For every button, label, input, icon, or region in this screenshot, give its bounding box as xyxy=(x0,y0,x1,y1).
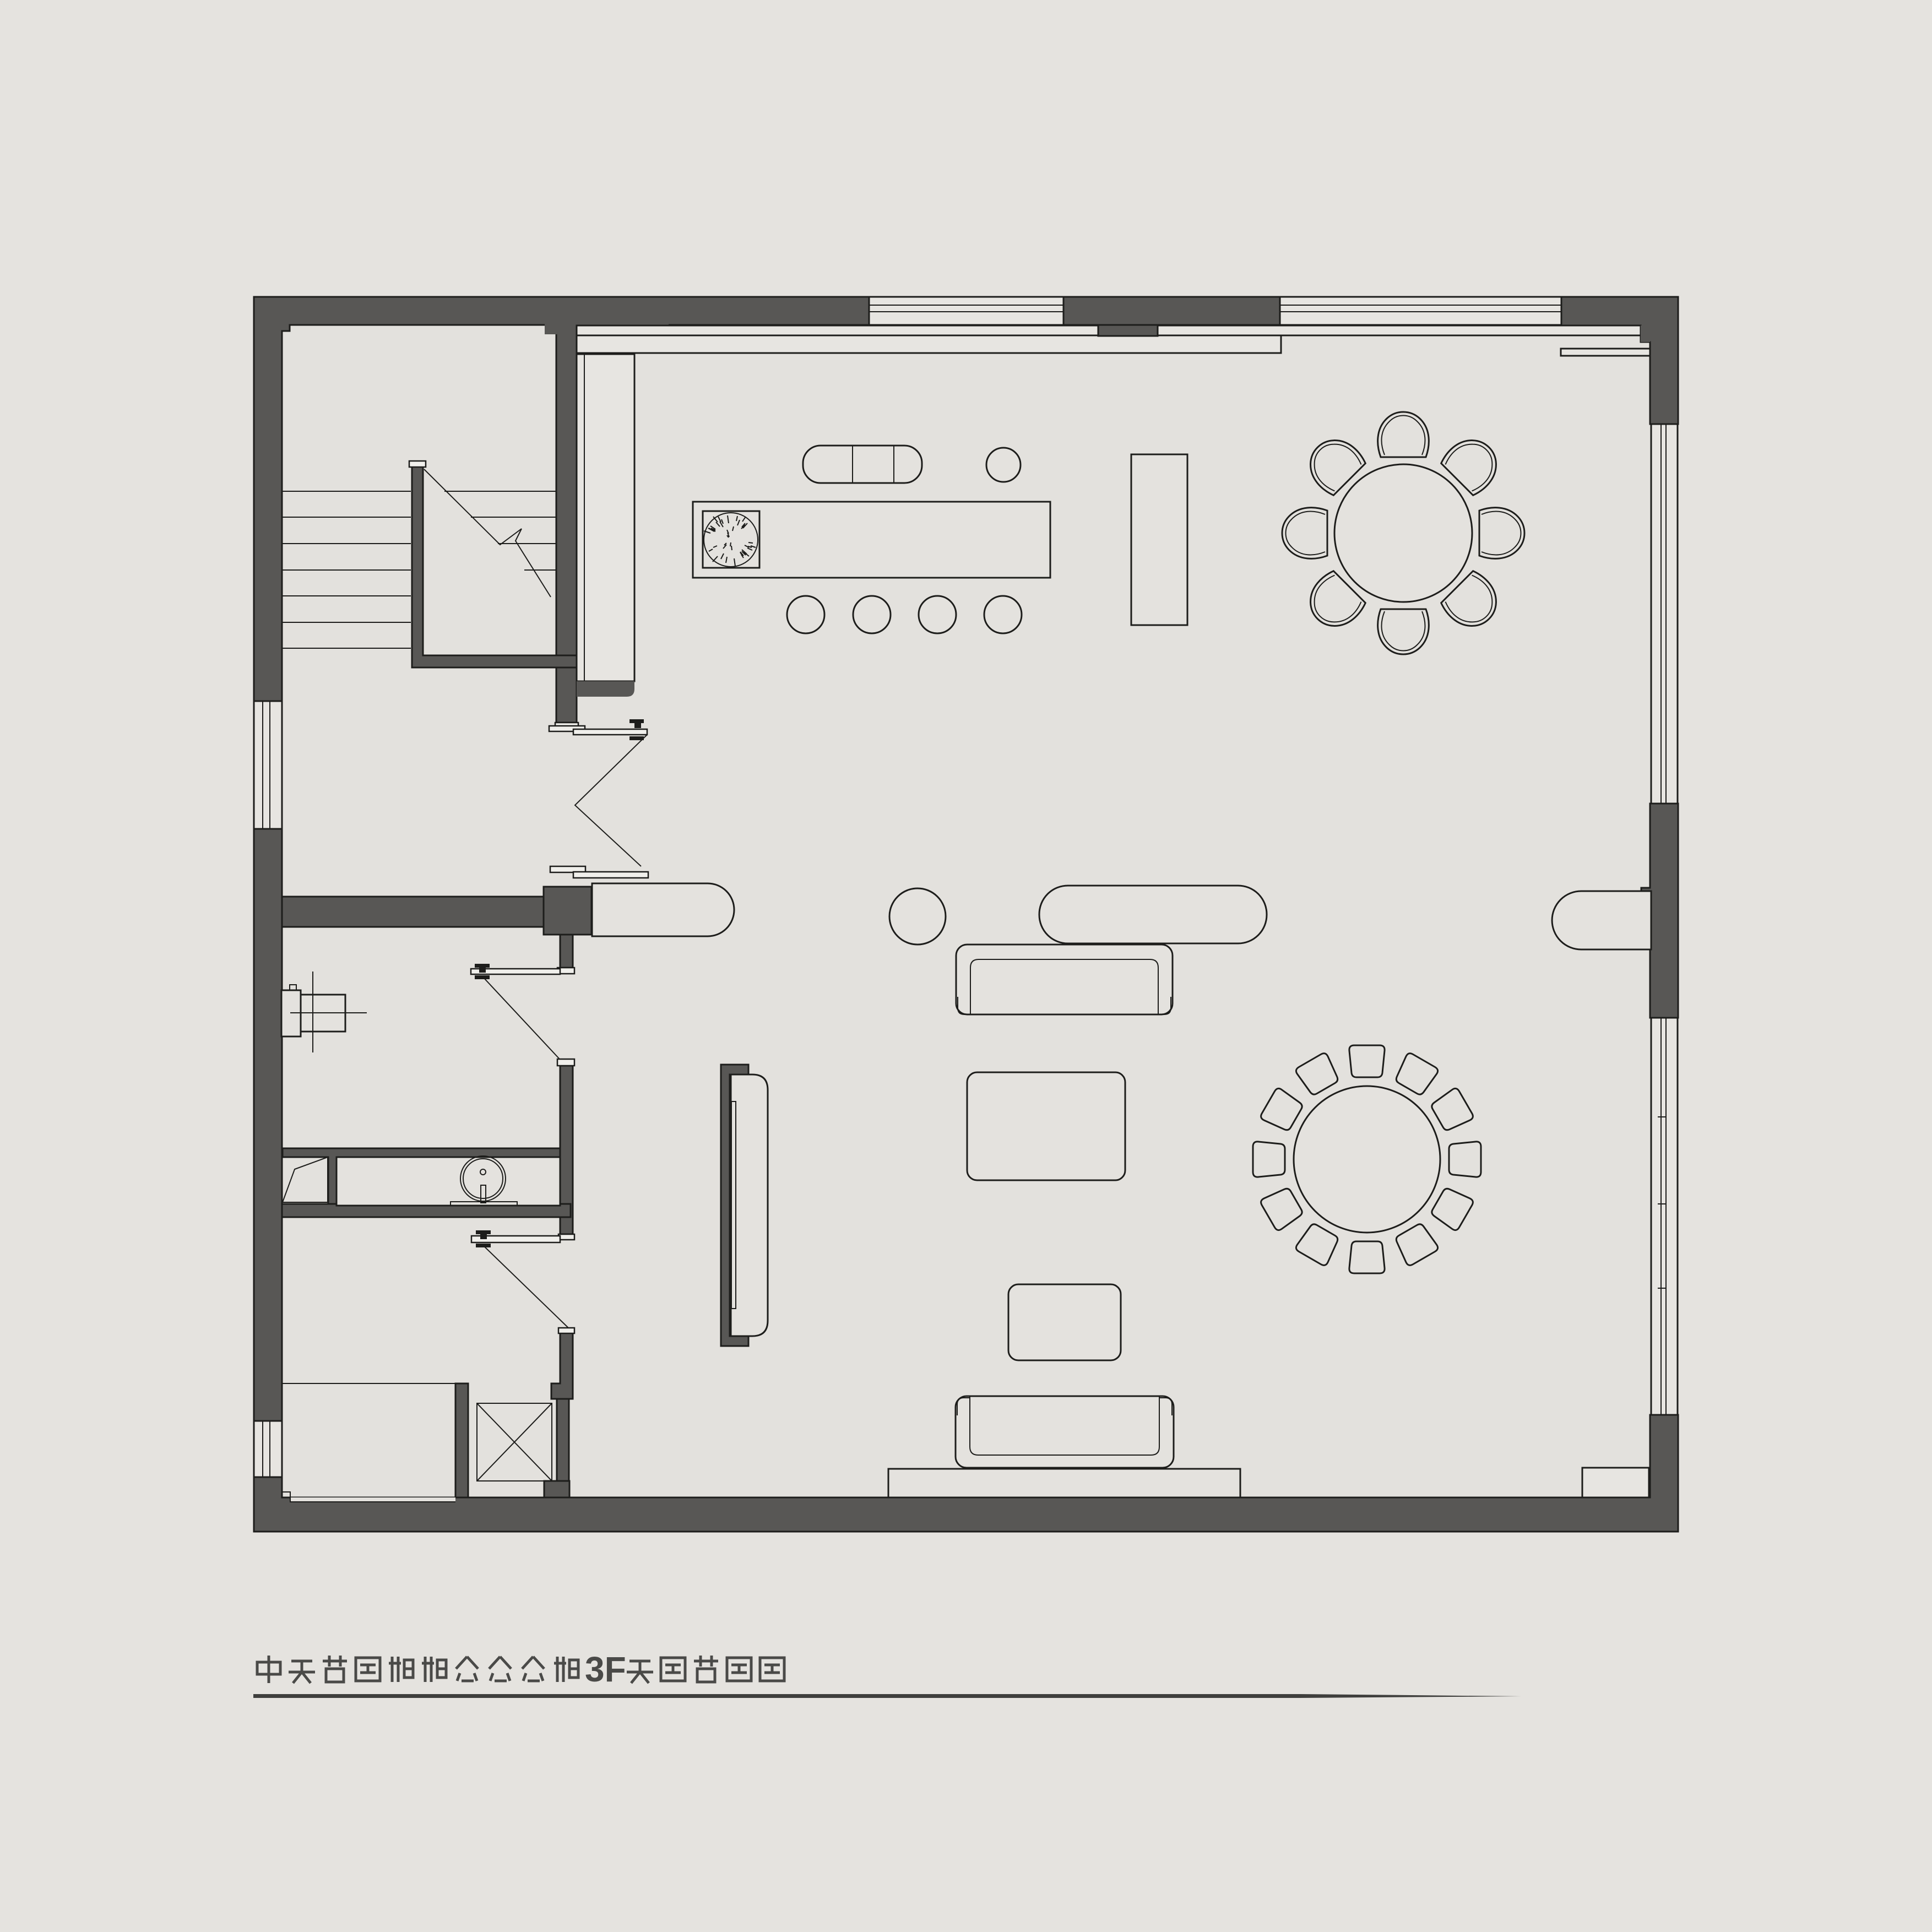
svg-text:3F: 3F xyxy=(585,1649,626,1689)
